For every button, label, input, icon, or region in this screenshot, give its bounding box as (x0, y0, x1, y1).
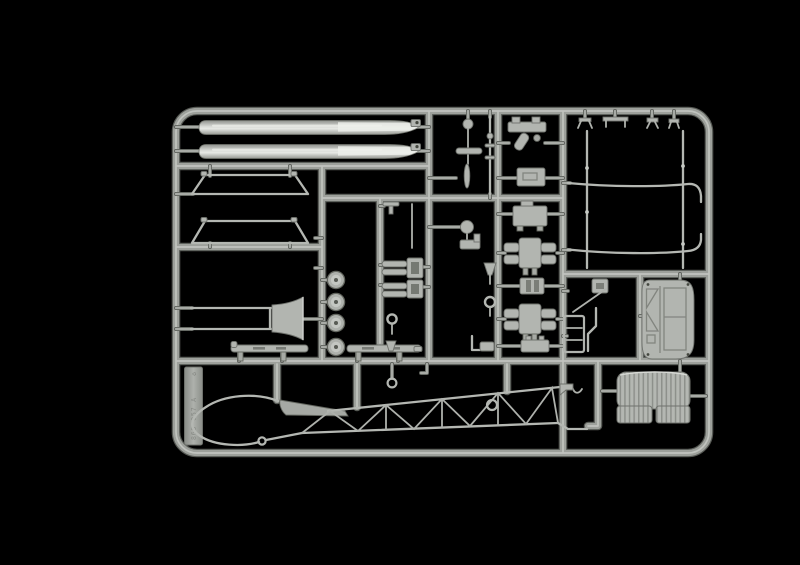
cabin-door-panel (642, 280, 694, 359)
sprue-photo: 869 057 A ♻ (40, 16, 800, 549)
molded-tag: 869 057 A ♻ (185, 367, 203, 445)
main-rotor-blade (199, 144, 421, 159)
main-rotor-blade (199, 120, 421, 135)
road-wheel (327, 271, 344, 288)
road-wheel (327, 314, 344, 331)
road-wheel (327, 293, 344, 310)
road-wheel (327, 338, 344, 355)
sprue-illustration: 869 057 A ♻ (40, 16, 800, 549)
recycle-icon: ♻ (190, 371, 198, 376)
